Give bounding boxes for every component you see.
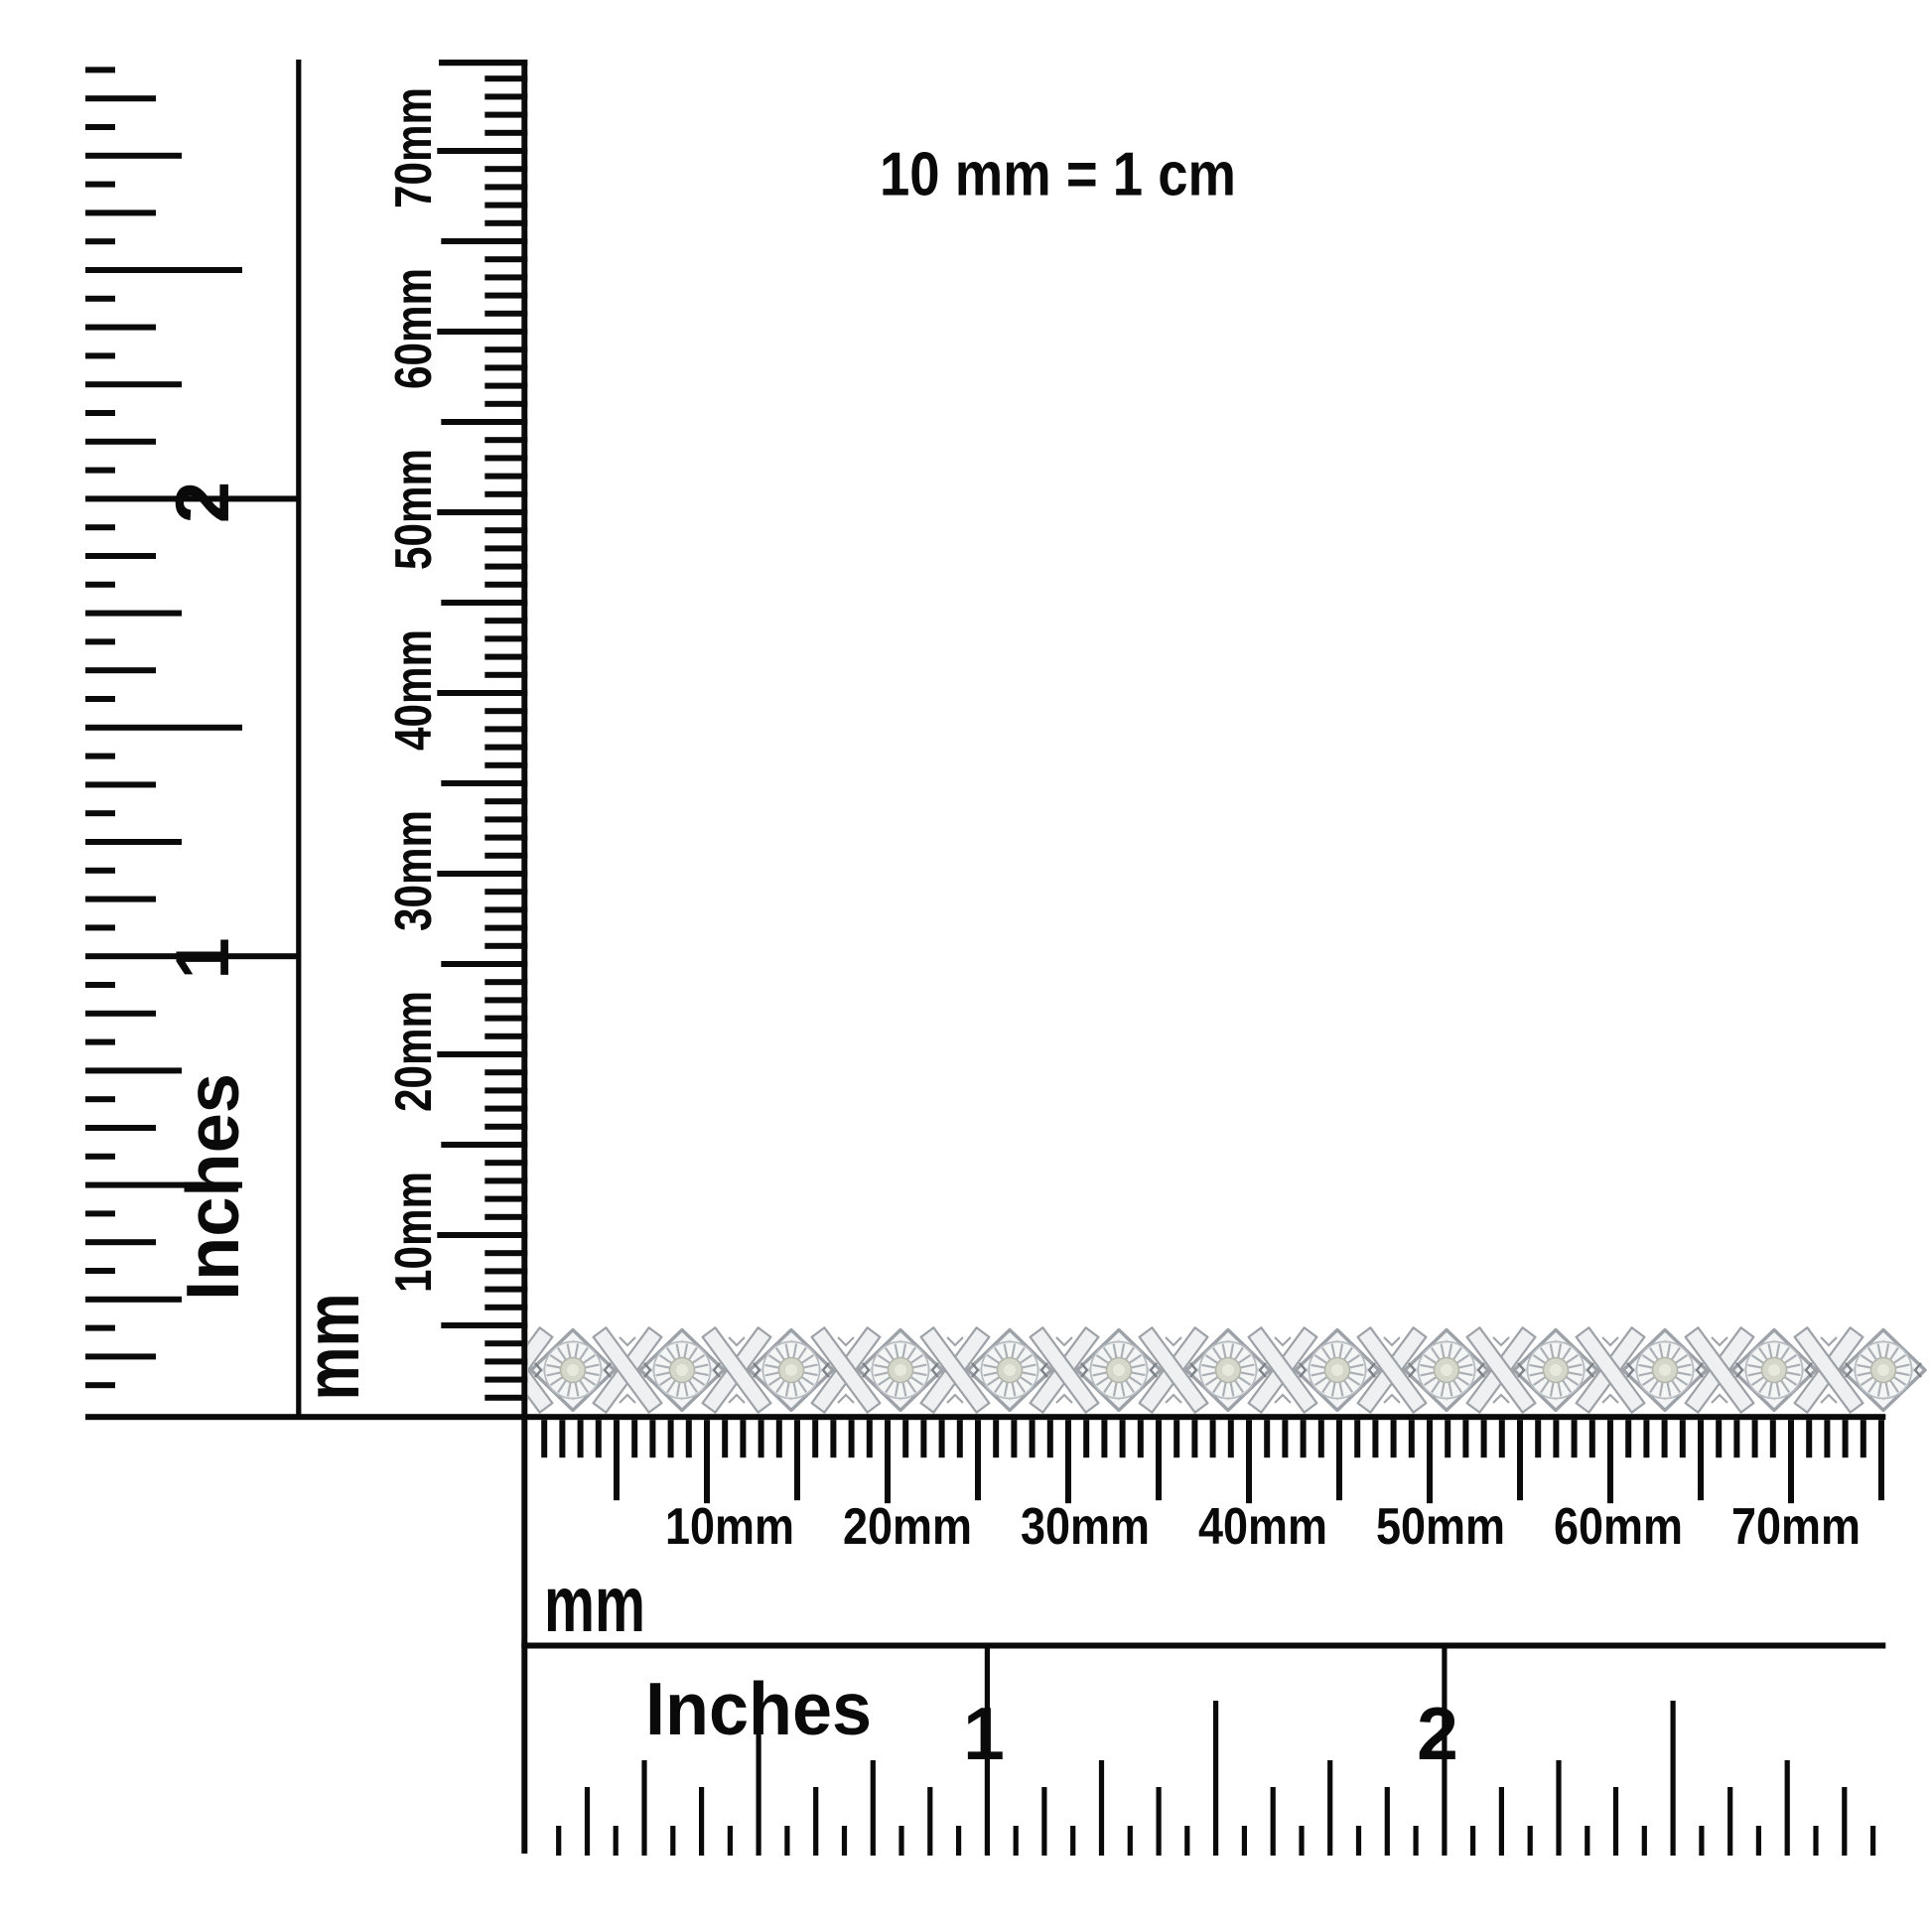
svg-text:Inches: Inches (645, 1667, 872, 1750)
svg-text:mm: mm (290, 1294, 375, 1401)
svg-text:20mm: 20mm (385, 991, 443, 1112)
svg-text:40mm: 40mm (1198, 1498, 1327, 1556)
svg-text:1: 1 (161, 937, 245, 979)
svg-text:40mm: 40mm (385, 629, 443, 751)
svg-text:10mm: 10mm (665, 1498, 794, 1556)
svg-text:60mm: 60mm (385, 268, 443, 389)
svg-text:2: 2 (1417, 1692, 1458, 1775)
svg-text:20mm: 20mm (843, 1498, 972, 1556)
svg-text:10mm: 10mm (385, 1172, 443, 1293)
svg-text:50mm: 50mm (1376, 1498, 1505, 1556)
svg-text:30mm: 30mm (385, 810, 443, 931)
svg-text:30mm: 30mm (1021, 1498, 1150, 1556)
svg-text:1: 1 (963, 1692, 1005, 1775)
svg-text:mm: mm (544, 1560, 645, 1648)
svg-text:60mm: 60mm (1554, 1498, 1683, 1556)
svg-text:10 mm = 1 cm: 10 mm = 1 cm (880, 141, 1236, 209)
svg-text:70mm: 70mm (1731, 1498, 1861, 1556)
svg-text:50mm: 50mm (385, 449, 443, 570)
svg-text:70mm: 70mm (385, 87, 443, 208)
svg-text:2: 2 (161, 482, 245, 523)
svg-text:Inches: Inches (171, 1073, 254, 1301)
